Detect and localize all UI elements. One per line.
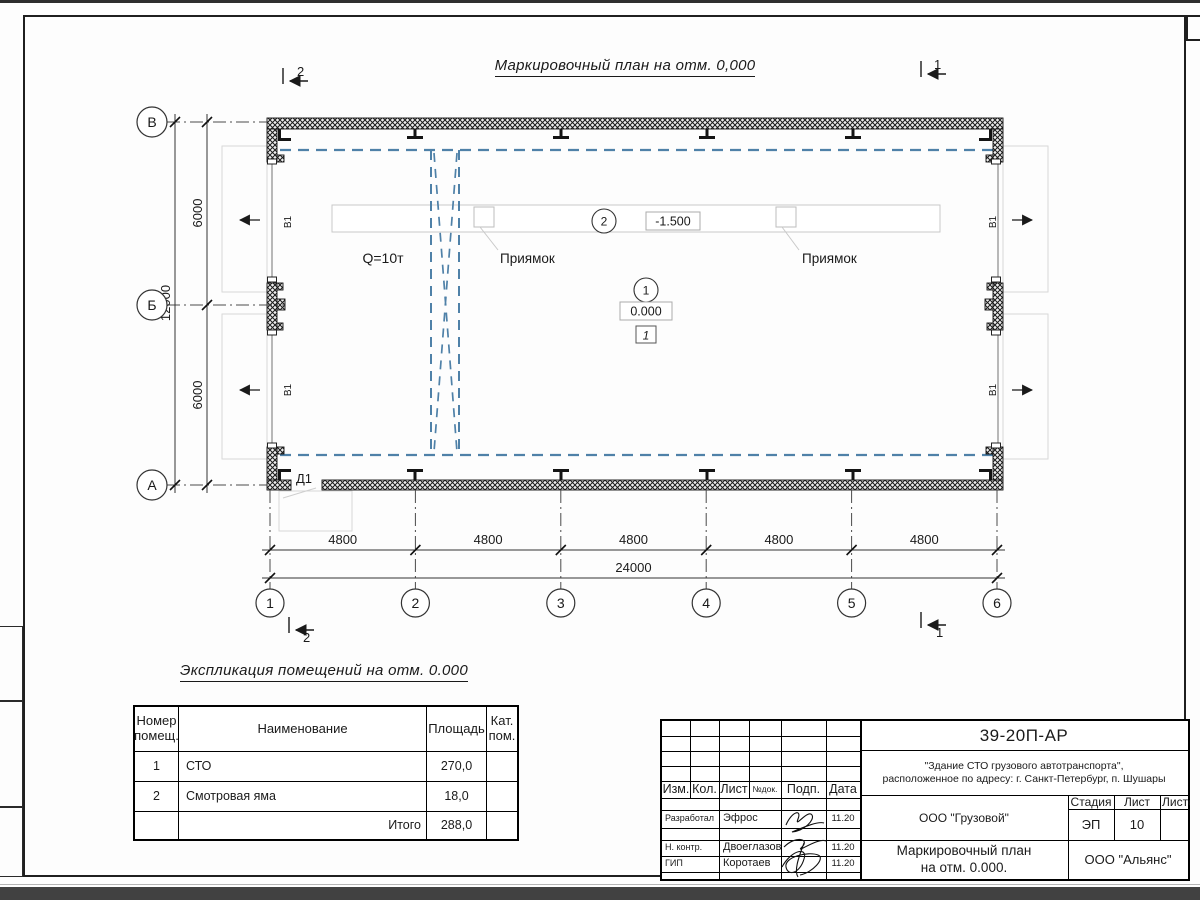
window-mark: В1 [988, 383, 999, 396]
tb-role: ГИП [662, 856, 722, 872]
tb-col-kol: Кол. [690, 781, 719, 798]
col-header-room-number: Номер помещ. [135, 707, 179, 752]
tb-col-podp: Подп. [781, 781, 826, 798]
crane-bridge-cross [434, 153, 457, 452]
explication-title: Экспликация помещений на отм. 0.000 [180, 662, 468, 682]
total-area: 288,0 [427, 812, 487, 839]
dim-4800: 4800 [328, 532, 357, 547]
wall-left-top [267, 129, 277, 162]
stage-header: Стадия [1068, 795, 1114, 809]
wall-bottom [322, 480, 1003, 490]
tb-name: Коротаев [719, 856, 785, 872]
tb-role: Разработал [662, 810, 722, 828]
wall-right-top [993, 129, 1003, 162]
axis-label-5: 5 [848, 595, 856, 611]
axis-label-b: Б [147, 297, 156, 313]
col-header-name: Наименование [179, 707, 427, 752]
section-marks [283, 61, 946, 633]
stage-value: ЭП [1068, 810, 1114, 840]
axis-label-a: А [147, 477, 157, 493]
sheet-header: Лист [1114, 795, 1160, 809]
sheet-title: Маркировочный план на отм. 0.000. [860, 841, 1068, 879]
door-porch [279, 491, 352, 531]
dim-6000: 6000 [190, 381, 205, 410]
wall-bottom-corner [267, 480, 291, 490]
dim-4800: 4800 [474, 532, 503, 547]
table-row-cell: 2 [135, 782, 179, 812]
table-row-cell: 18,0 [427, 782, 487, 812]
tb-date: 11.20 [826, 856, 860, 872]
wall-left-bottom [267, 447, 277, 480]
wall-right-pier [993, 283, 1003, 330]
table-total-row [135, 812, 179, 839]
window-mark: В1 [988, 215, 999, 228]
axis-label-v: В [147, 114, 156, 130]
tb-col-ndok: №док. [749, 781, 781, 798]
table-row-cell: 270,0 [427, 752, 487, 782]
tb-date: 11.20 [826, 840, 860, 856]
room1-elevation: 0.000 [630, 305, 661, 319]
room1-number: 1 [643, 284, 650, 298]
explication-title-wrap: Экспликация помещений на отм. 0.000 [133, 662, 515, 682]
window-mark: В1 [283, 215, 294, 228]
axis-label-2: 2 [412, 595, 420, 611]
axis-label-1: 1 [266, 595, 274, 611]
wall-left-pier [267, 283, 277, 330]
tb-col-list: Лист [719, 781, 749, 798]
section-label-2-bottom: 2 [303, 630, 310, 645]
plan-annotations: В1 В1 В1 В1 Q=10т Приямок Приямок Д1 2 -… [283, 209, 999, 486]
axis-label-6: 6 [993, 595, 1001, 611]
pit-square-left [474, 207, 494, 227]
col-header-category: Кат. пом. [487, 707, 517, 752]
tb-col-data: Дата [826, 781, 860, 798]
col-header-area: Площадь [427, 707, 487, 752]
axis-bubbles: В Б А 1 2 3 4 5 6 [137, 107, 1011, 617]
tb-col-izm: Изм. [662, 781, 690, 798]
window-mark: В1 [283, 383, 294, 396]
project-name: "Здание СТО грузового автотранспорта", р… [860, 752, 1188, 794]
section-label-1-bottom: 1 [936, 625, 943, 640]
client-name: ООО "Грузовой" [860, 796, 1068, 840]
axis-label-4: 4 [702, 595, 710, 611]
table-row-cell [487, 782, 517, 812]
room2-elevation: -1.500 [655, 215, 690, 229]
pit-label-left: Приямок [500, 251, 555, 266]
table-total-row [487, 812, 517, 839]
plan-title-wrap: Маркировочный план на отм. 0,000 [425, 57, 825, 77]
table-row-cell: Смотровая яма [179, 782, 427, 812]
table-row-cell: 1 [135, 752, 179, 782]
tb-name: Эфрос [719, 810, 785, 828]
dim-6000: 6000 [190, 199, 205, 228]
tb-role: Н. контр. [662, 840, 722, 856]
floor-type-number: 1 [643, 329, 650, 343]
dim-4800: 4800 [619, 532, 648, 547]
wall-top [267, 118, 1003, 129]
section-label-1-top: 1 [934, 57, 941, 72]
sheets-header: Листов [1160, 795, 1190, 809]
tb-date: 11.20 [826, 810, 860, 828]
plan-title: Маркировочный план на отм. 0,000 [495, 57, 756, 77]
total-label: Итого [179, 812, 427, 839]
dim-ticks [170, 117, 1002, 583]
dim-4800: 4800 [764, 532, 793, 547]
wall-right-bottom [993, 447, 1003, 480]
tb-name: Двоеглазов [719, 840, 785, 856]
section-label-2-top: 2 [297, 64, 304, 79]
room-schedule-table: Номер помещ. Наименование Площадь Кат. п… [133, 705, 519, 841]
title-block: Изм. Кол. Лист №док. Подп. Дата Разработ… [660, 719, 1190, 881]
door-mark: Д1 [296, 471, 312, 486]
dim-4800: 4800 [910, 532, 939, 547]
table-row-cell: СТО [179, 752, 427, 782]
dim-24000: 24000 [615, 560, 651, 575]
doc-number: 39-20П-АР [860, 721, 1188, 750]
table-row-cell [487, 752, 517, 782]
dimensions: 4800 4800 4800 4800 4800 24000 6000 6000… [158, 114, 1005, 583]
company-name: ООО "Альянс" [1068, 841, 1188, 879]
room2-number: 2 [601, 215, 608, 229]
sheet-number: 10 [1114, 810, 1160, 840]
crane-capacity-label: Q=10т [362, 250, 404, 266]
drawing-sheet: 4800 4800 4800 4800 4800 24000 6000 6000… [0, 0, 1200, 900]
axis-grid [167, 122, 997, 589]
window-zones [222, 146, 1048, 531]
pit-square-right [776, 207, 796, 227]
pit-label-right: Приямок [802, 251, 857, 266]
axis-label-3: 3 [557, 595, 565, 611]
